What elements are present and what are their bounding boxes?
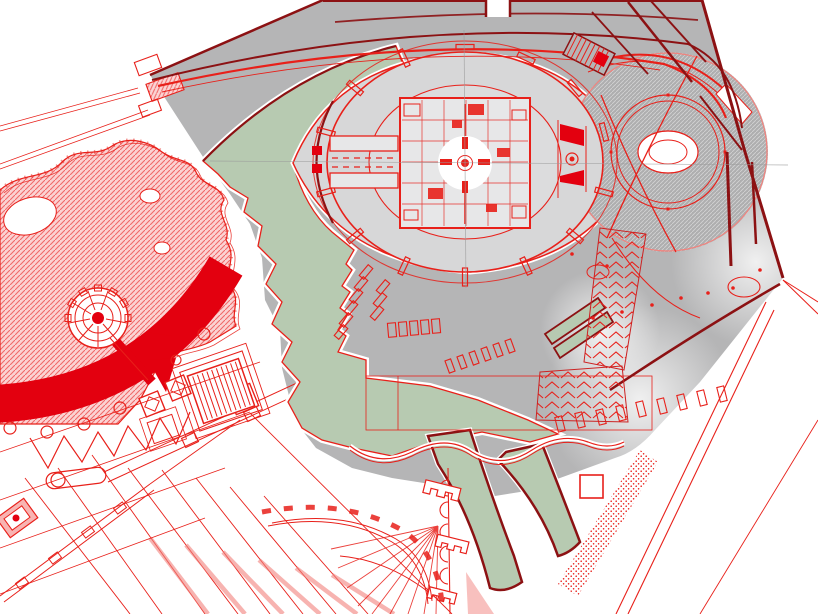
top-entrance — [486, 0, 510, 17]
west-wing-slab — [330, 173, 398, 188]
wide-stripe — [259, 560, 320, 614]
cross-line — [0, 518, 205, 594]
wide-stripe — [223, 552, 283, 614]
wide-stripe — [186, 545, 245, 614]
east-gate-hinge — [570, 157, 575, 162]
cross-line — [0, 412, 250, 500]
core-room — [486, 204, 497, 212]
tree — [41, 426, 53, 438]
core-room — [428, 188, 443, 199]
core-room — [497, 148, 510, 157]
gatehouse — [139, 99, 162, 117]
ring-dot — [667, 208, 670, 211]
utility-line — [0, 88, 138, 126]
wide-stripe — [150, 538, 208, 614]
kiosk-dot — [13, 515, 20, 522]
core-room — [468, 104, 484, 115]
path-line — [25, 478, 130, 614]
center-cross — [478, 159, 490, 165]
stair-fan — [331, 526, 438, 614]
path-line — [128, 468, 238, 614]
center-cross — [440, 159, 452, 165]
path-line — [230, 487, 336, 614]
utility-line — [0, 93, 140, 131]
pond-island — [140, 189, 160, 203]
chevron-band — [536, 366, 628, 422]
path-line — [162, 470, 270, 614]
west-wing-slab — [330, 136, 398, 151]
ground-dot — [650, 303, 654, 307]
pond-island — [154, 242, 170, 254]
path-line — [196, 478, 303, 614]
ground-dot — [570, 252, 574, 256]
spiral-core — [92, 312, 104, 324]
ground-dot — [731, 286, 735, 290]
ground-dot — [706, 291, 710, 295]
site-plan-canvas — [0, 0, 818, 614]
ring-dot — [667, 94, 670, 97]
core-room — [452, 120, 462, 128]
west-gate — [312, 164, 322, 173]
ground-dot — [679, 296, 683, 300]
site-plan-drawing — [0, 0, 818, 614]
ground-dot — [758, 268, 762, 272]
west-gate — [312, 146, 322, 155]
ring-dot — [610, 151, 613, 154]
